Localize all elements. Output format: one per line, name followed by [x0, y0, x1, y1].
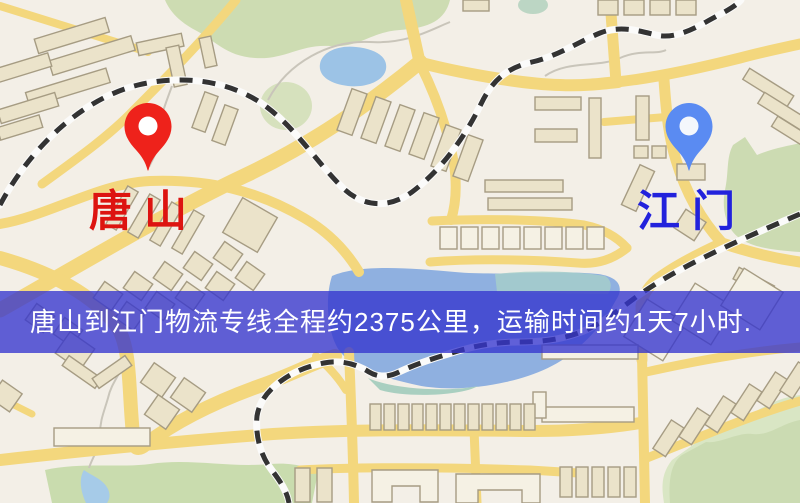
origin-marker-pin-icon[interactable]: [121, 100, 175, 174]
map-canvas[interactable]: 唐山 江门 唐山到江门物流专线全程约2375公里，运输时间约1天7小时.: [0, 0, 800, 503]
route-info-banner: 唐山到江门物流专线全程约2375公里，运输时间约1天7小时.: [0, 291, 800, 353]
destination-pin-hole: [680, 117, 699, 136]
origin-city-label: 唐山: [89, 177, 199, 239]
destination-pin-shape: [666, 103, 713, 171]
destination-marker-pin-icon[interactable]: [662, 100, 716, 174]
destination-city-label: 江门: [637, 177, 747, 239]
route-info-text: 唐山到江门物流专线全程约2375公里，运输时间约1天7小时.: [30, 307, 752, 337]
origin-pin-shape: [125, 103, 172, 171]
map-artwork: [0, 0, 800, 503]
origin-pin-hole: [139, 117, 158, 136]
